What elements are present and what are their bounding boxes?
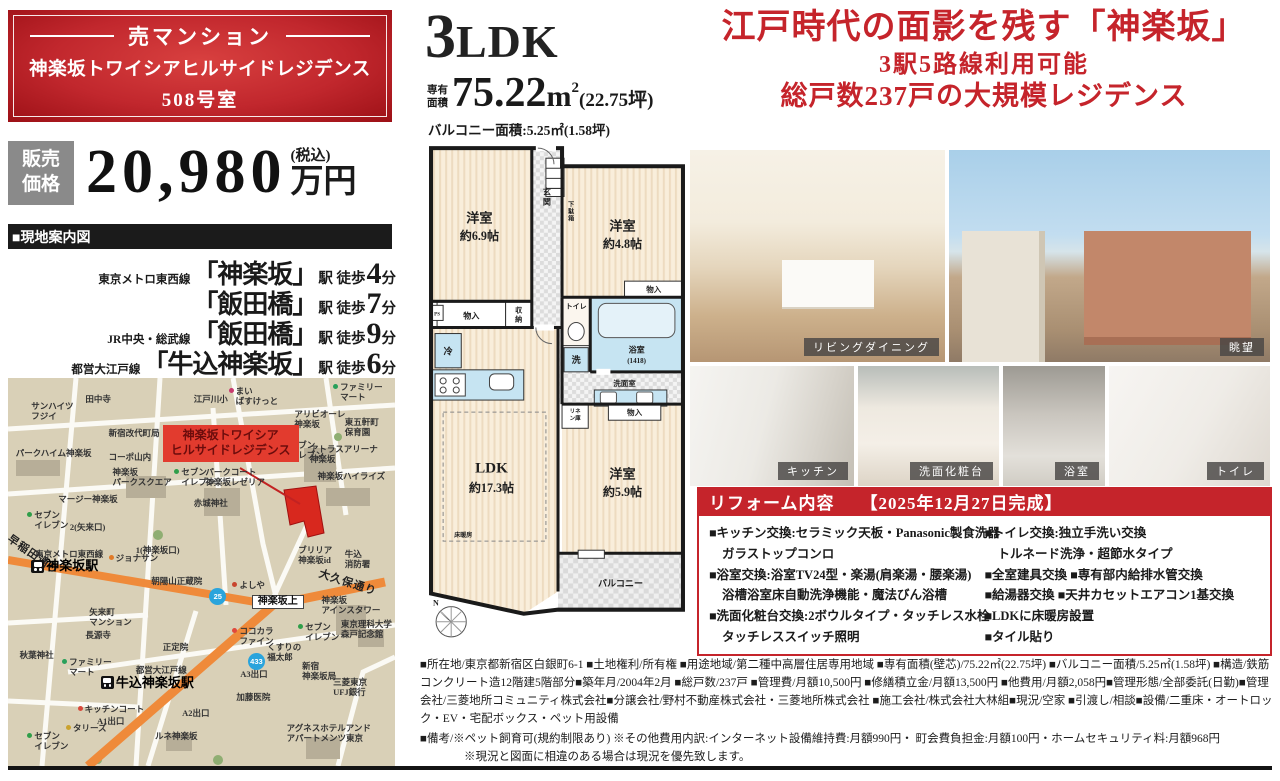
balcony-area: バルコニー面積:5.25㎡(1.58坪)	[428, 119, 610, 139]
station-walk-label: 駅 徒歩	[318, 267, 365, 288]
svg-text:箱: 箱	[568, 215, 574, 223]
reform-header: リフォーム内容 【2025年12月27日完成】	[697, 487, 1272, 516]
price-label-line1: 販売	[22, 148, 60, 173]
map-poi: 東京メトロ東西線	[35, 549, 103, 559]
station-line-name: 都営大江戸線	[71, 361, 140, 377]
map-poi: アグネスホテルアンド アパートメンツ東京	[287, 723, 371, 743]
photo-label: 洗面化粧台	[910, 462, 993, 480]
area-map: 田中寺サンハイツ フジイ江戸川小まい ばすけっとファミリー マート新宿改代町局パ…	[8, 378, 395, 766]
svg-text:N: N	[433, 599, 439, 608]
station-line-name: 東京メトロ東西線	[98, 271, 190, 287]
price-section: 販売 価格 20,980 (税込) 万円	[8, 136, 410, 210]
map-poi: 田中寺	[85, 394, 111, 404]
unit-layout-suffix: LDK	[456, 19, 559, 65]
poi-dot	[66, 725, 71, 730]
reform-body: ■キッチン交換:セラミック天板・Panasonic製食洗器 ガラストップコンロ …	[697, 516, 1272, 656]
poi-dot	[62, 659, 67, 664]
route-badge-25: 25	[209, 588, 226, 605]
svg-text:リネ: リネ	[570, 407, 582, 415]
reform-item: ■タイル貼り	[985, 627, 1261, 648]
poi-dot	[27, 512, 32, 517]
svg-text:洗面室: 洗面室	[613, 378, 636, 388]
photo-label: 浴室	[1055, 462, 1099, 480]
map-poi: 長源寺	[85, 630, 111, 640]
svg-text:納: 納	[515, 314, 522, 323]
map-poi: 朝陽山正蔵院	[151, 576, 202, 586]
svg-text:物入: 物入	[463, 310, 479, 320]
view-building-shape	[962, 231, 1045, 362]
kitchen-counter-shape	[782, 260, 874, 307]
svg-text:下: 下	[568, 202, 574, 209]
map-poi: パークハイム神楽坂	[16, 448, 92, 458]
poi-dot	[298, 624, 303, 629]
photo-bathroom: 浴室	[1003, 366, 1105, 486]
listing-category-row: 売マンション	[14, 21, 386, 51]
poi-dot	[27, 733, 32, 738]
subject-building-label: 神楽坂トワイシア ヒルサイドレジデンス	[163, 425, 299, 462]
room-label: LDK	[475, 461, 508, 477]
price-unit-col: (税込) 万円	[291, 144, 357, 200]
map-poi: 矢来町 マンション	[89, 607, 132, 627]
svg-text:冷: 冷	[444, 346, 453, 357]
svg-text:物入: 物入	[627, 407, 643, 417]
unit-layout-number: 3	[425, 6, 456, 68]
reform-list-left: ■キッチン交換:セラミック天板・Panasonic製食洗器 ガラストップコンロ …	[709, 523, 985, 648]
svg-text:PS: PS	[434, 312, 440, 317]
listing-title-inner: 売マンション 神楽坂トワイシアヒルサイドレジデンス 508号室	[13, 15, 387, 117]
subject-label-line2: ヒルサイドレジデンス	[171, 443, 291, 459]
price-unit: 万円	[291, 165, 357, 200]
building-name: 神楽坂トワイシアヒルサイドレジデンス	[29, 55, 371, 81]
map-poi: 牛込 消防署	[345, 549, 371, 569]
photo-label: キッチン	[778, 462, 848, 480]
view-building-shape	[1084, 231, 1251, 345]
map-poi: A3出口	[240, 669, 267, 679]
map-poi: ファミリー マート	[333, 382, 383, 402]
map-poi: マージー神楽坂	[58, 494, 117, 504]
price-label-line2: 価格	[22, 173, 60, 198]
poi-dot	[232, 628, 237, 633]
property-remarks: ■備考/※ペット飼育可(規約制限あり) ※その他費用内訳:インターネット設備維持…	[420, 730, 1277, 748]
photo-label: 眺望	[1220, 338, 1264, 356]
map-station-label: 神楽坂駅	[31, 558, 98, 573]
station-walk-label: 駅 徒歩	[318, 357, 365, 378]
station-minutes-unit: 分	[382, 267, 397, 288]
svg-text:トイレ: トイレ	[566, 302, 587, 310]
poi-dot	[174, 469, 179, 474]
reform-item: タッチレススイッチ照明	[709, 627, 985, 648]
map-poi: ルネ神楽坂	[155, 731, 198, 741]
station-walk-minutes: 6	[367, 347, 382, 381]
reform-item: 浴槽浴室床自動洗浄機能・魔法びん浴槽	[709, 585, 985, 606]
guide-map-header: ■現地案内図	[8, 224, 392, 249]
property-details-main: ■所在地/東京都新宿区白銀町6-1 ■土地権利/所有権 ■用途地域/第二種中高層…	[420, 656, 1277, 729]
map-poi: 神楽坂ハイライズ	[318, 471, 386, 481]
map-poi: 東五軒町 保育園	[345, 417, 379, 437]
map-poi: アリビオーレ 神楽坂	[294, 409, 345, 429]
listing-title-box: 売マンション 神楽坂トワイシアヒルサイドレジデンス 508号室	[8, 10, 392, 122]
station-row: JR中央・総武線 「飯田橋」 駅 徒歩 9 分	[8, 314, 396, 344]
photo-label: トイレ	[1207, 462, 1264, 480]
poi-dot	[333, 384, 338, 389]
price-value: 20,980	[86, 136, 287, 208]
room-label: 洋室	[466, 210, 492, 226]
room-label: 約17.3帖	[469, 480, 514, 495]
map-poi: セブン イレブン	[27, 510, 68, 530]
station-minutes-unit: 分	[382, 327, 397, 348]
title-dash-left	[30, 35, 114, 37]
subject-label-line1: 神楽坂トワイシア	[171, 428, 291, 444]
room-number: 508号室	[162, 85, 239, 112]
catch-copy-line3: 総戸数237戸の大規模レジデンス	[695, 80, 1273, 114]
catch-copy-line1: 江戸時代の面影を残す「神楽坂」	[695, 6, 1273, 50]
map-poi: アトラスアリーナ 神楽坂	[310, 444, 378, 464]
station-walk-minutes: 4	[367, 257, 382, 291]
poi-dot	[232, 582, 237, 587]
station-minutes-unit: 分	[382, 297, 397, 318]
reform-item: ■トイレ交換:独立手洗い交換	[985, 523, 1261, 544]
map-poi: セブン イレブン	[298, 622, 339, 642]
reform-item: ■キッチン交換:セラミック天板・Panasonic製食洗器	[709, 523, 985, 544]
map-poi: 新宿改代町局	[109, 428, 160, 438]
map-poi: 都営大江戸線	[136, 665, 187, 675]
room-label: 洋室	[609, 466, 635, 482]
unit-area-tsubo: (22.75坪)	[579, 85, 653, 112]
room-label: 約5.9帖	[603, 484, 642, 499]
map-poi: くすりの 福太郎	[267, 642, 301, 662]
photo-label: リビングダイニング	[804, 338, 939, 356]
poi-dot	[229, 388, 234, 393]
station-access-list: 東京メトロ東西線 「神楽坂」 駅 徒歩 4 分 「飯田橋」 駅 徒歩 7 分 J…	[8, 254, 396, 374]
station-row: 東京メトロ東西線 「神楽坂」 駅 徒歩 4 分	[8, 254, 396, 284]
reform-list-right: ■トイレ交換:独立手洗い交換 トルネード洗浄・超節水タイプ ■全室建具交換 ■専…	[985, 523, 1261, 648]
station-walk-label: 駅 徒歩	[318, 327, 365, 348]
photo-kitchen: キッチン	[690, 366, 854, 486]
map-poi: 1(神楽坂口)	[136, 545, 180, 555]
room-label: 約6.9帖	[460, 228, 499, 243]
map-poi: 神楽坂上	[252, 595, 304, 609]
reform-title: リフォーム内容	[709, 489, 835, 514]
station-walk-minutes: 9	[367, 317, 382, 351]
svg-text:浴室: 浴室	[629, 345, 645, 355]
reform-item: トルネード洗浄・超節水タイプ	[985, 544, 1261, 565]
station-minutes-unit: 分	[382, 357, 397, 378]
svg-text:収: 収	[515, 305, 523, 314]
svg-text:駄: 駄	[568, 208, 575, 216]
station-row: 都営大江戸線 「牛込神楽坂」 駅 徒歩 6 分	[8, 344, 396, 374]
unit-layout: 3 LDK	[425, 6, 559, 68]
map-poi: セブン イレブン	[27, 731, 68, 751]
map-poi: パークコート 神楽坂レゼリア	[205, 467, 265, 487]
unit-area-label: 専有 面積	[427, 84, 448, 110]
poi-dot	[109, 555, 114, 560]
price-tax-note: (税込)	[291, 144, 357, 165]
property-details: ■所在地/東京都新宿区白銀町6-1 ■土地権利/所有権 ■用途地域/第二種中高層…	[420, 656, 1277, 766]
map-poi: 2(矢来口)	[70, 522, 105, 532]
unit-area-value: 75.22m2	[452, 74, 579, 114]
station-walk-label: 駅 徒歩	[318, 297, 365, 318]
room-label: 約4.8帖	[603, 236, 642, 251]
map-poi: タリーズ	[66, 723, 107, 733]
catch-copy: 江戸時代の面影を残す「神楽坂」 3駅5路線利用可能 総戸数237戸の大規模レジデ…	[695, 6, 1273, 114]
bottom-rule	[8, 766, 1272, 770]
map-station-label: 牛込神楽坂駅	[101, 675, 194, 690]
station-walk-minutes: 7	[367, 287, 382, 321]
catch-copy-line2: 3駅5路線利用可能	[695, 50, 1273, 80]
compass-icon: N	[433, 599, 466, 637]
unit-area: 専有 面積 75.22m2 (22.75坪)	[427, 74, 653, 114]
property-note: ※現況と図面に相違のある場合は現況を優先致します。	[420, 748, 1277, 766]
flyer-page: 売マンション 神楽坂トワイシアヒルサイドレジデンス 508号室 販売 価格 20…	[0, 0, 1280, 781]
map-poi: 秋葉神社	[20, 650, 54, 660]
map-poi: 神楽坂 パークスクエア	[112, 467, 171, 487]
reform-item: ■全室建具交換 ■専有部内給排水管交換	[985, 565, 1261, 586]
svg-text:洗: 洗	[572, 354, 582, 365]
photo-toilet: トイレ	[1109, 366, 1270, 486]
svg-text:関: 関	[543, 197, 551, 207]
map-poi: 東京理科大学 森戸記念館	[341, 619, 392, 639]
map-poi: まい ばすけっと	[229, 386, 279, 406]
svg-text:(1418): (1418)	[627, 357, 646, 365]
map-poi: ブリリア 神楽坂id	[298, 545, 332, 565]
title-dash-right	[286, 35, 370, 37]
map-poi: 江戸川小	[194, 394, 228, 404]
poi-dot	[78, 706, 83, 711]
map-poi: 神楽坂 アインスタワー	[321, 595, 380, 615]
reform-completion-date: 【2025年12月27日完成】	[861, 489, 1063, 514]
price-label: 販売 価格	[8, 141, 74, 205]
map-poi: よしや	[232, 580, 264, 590]
floor-plan: N 洋室 約6.9帖 玄 関 下 駄 箱 洋室 約4.8帖 物入 収 納 PS …	[427, 140, 687, 644]
svg-text:物入: 物入	[646, 284, 662, 294]
photo-living-dining: リビングダイニング	[690, 150, 945, 362]
train-station-icon	[31, 560, 44, 573]
reform-section: リフォーム内容 【2025年12月27日完成】 ■キッチン交換:セラミック天板・…	[697, 487, 1272, 656]
svg-text:ン庫: ン庫	[570, 414, 582, 422]
map-poi: 新宿 神楽坂局	[302, 661, 336, 681]
photo-vanity: 洗面化粧台	[858, 366, 999, 486]
reform-item: ■LDKに床暖房設置	[985, 606, 1261, 627]
reform-item: ■洗面化粧台交換:2ボウルタイプ・タッチレス水栓	[709, 606, 985, 627]
map-poi: A2出口	[182, 708, 209, 718]
map-poi: キッチンコート	[78, 704, 145, 714]
train-station-icon	[101, 676, 114, 689]
room-label: 洋室	[609, 218, 635, 234]
map-poi: サンハイツ フジイ	[31, 401, 73, 421]
reform-item: ガラストップコンロ	[709, 544, 985, 565]
map-poi: コーポ山内	[109, 452, 152, 462]
photo-view: 眺望	[949, 150, 1270, 362]
listing-category: 売マンション	[128, 21, 272, 51]
station-name: 「牛込神楽坂」	[142, 344, 317, 381]
map-poi: 加藤医院	[236, 692, 270, 702]
reform-item: ■給湯器交換 ■天井カセットエアコン1基交換	[985, 585, 1261, 606]
svg-text:床暖房: 床暖房	[454, 531, 472, 539]
map-poi: 赤城神社	[194, 498, 228, 508]
svg-text:玄: 玄	[543, 186, 551, 196]
map-poi: 正定院	[163, 642, 189, 652]
reform-item: ■浴室交換:浴室TV24型・楽湯(肩楽湯・腰楽湯)	[709, 565, 985, 586]
map-poi: 三菱東京 UFJ銀行	[333, 677, 367, 697]
room-label: バルコニー	[598, 578, 643, 588]
station-row: 「飯田橋」 駅 徒歩 7 分	[8, 284, 396, 314]
